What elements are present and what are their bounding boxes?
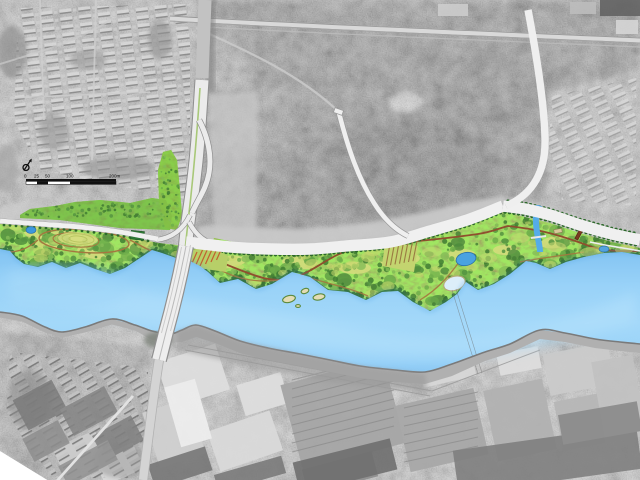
svg-text:100: 100 (66, 174, 74, 179)
svg-text:50: 50 (45, 174, 51, 179)
svg-text:200m: 200m (109, 174, 121, 179)
svg-text:25: 25 (34, 174, 40, 179)
